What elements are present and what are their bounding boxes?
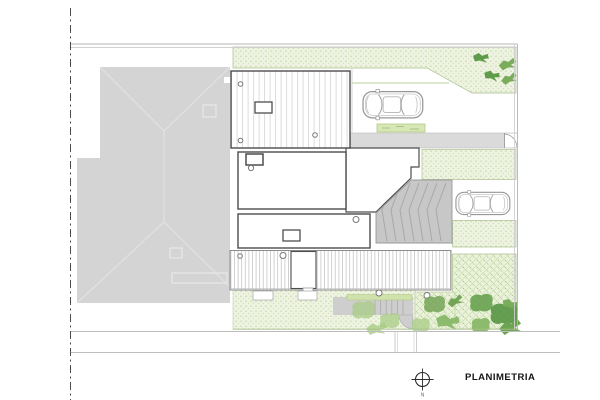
site-plan-drawing: N — [0, 0, 600, 400]
drawing-title: PLANIMETRIA — [465, 372, 535, 383]
chimney — [255, 102, 272, 113]
site-plan-canvas: N PLANIMETRIA — [0, 0, 600, 400]
timber-deck — [230, 251, 451, 295]
neighbor-building-roof — [77, 67, 233, 303]
driveway-path — [351, 133, 518, 148]
car-top-view-icon — [363, 90, 423, 120]
skylight — [283, 230, 300, 241]
deck-opening — [291, 252, 316, 289]
house-lower-volume — [238, 214, 370, 248]
chimney — [246, 154, 263, 165]
curb-cut — [395, 332, 417, 353]
side-garden-strip — [422, 150, 516, 180]
house-mid-volume — [238, 152, 346, 209]
sidewalk — [71, 332, 560, 353]
compass-icon: N — [412, 369, 434, 399]
east-garden-upper — [453, 221, 517, 248]
compass-north-label: N — [421, 393, 425, 399]
car-top-view-icon — [456, 191, 510, 217]
house-roof-hatched — [231, 71, 350, 148]
